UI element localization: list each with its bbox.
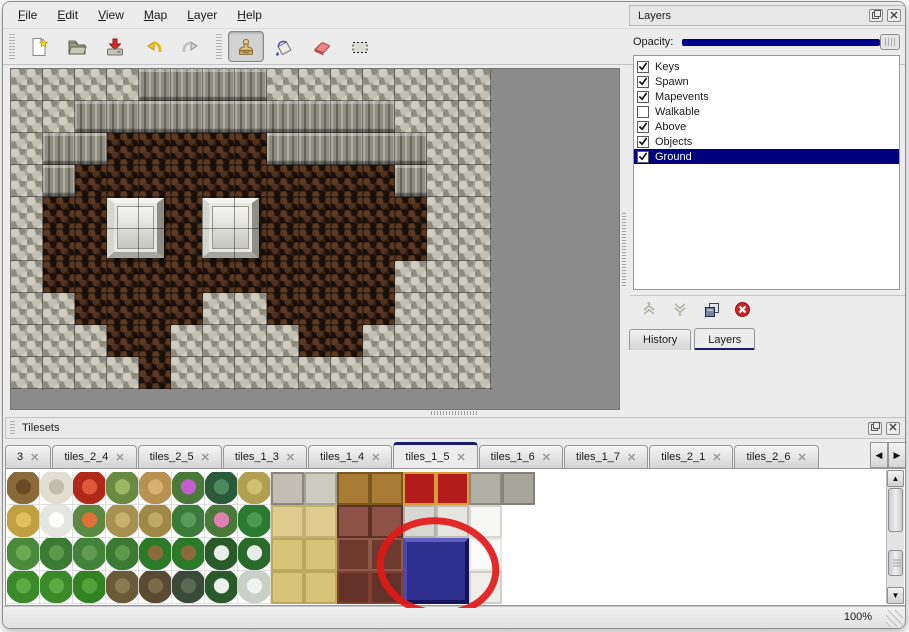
palette-tile-dryGrass[interactable]	[106, 505, 139, 538]
map-tile-rock[interactable]	[395, 261, 427, 293]
palette-tile-redBlock[interactable]	[370, 538, 403, 571]
map-tile-rock[interactable]	[459, 69, 491, 101]
palette-tile-woodA[interactable]	[337, 472, 370, 505]
tab-close-icon[interactable]: ✕	[30, 451, 39, 464]
duplicate-layer-button[interactable]	[702, 302, 720, 320]
tileset-tab-tiles_2_6[interactable]: tiles_2_6✕	[734, 445, 818, 468]
map-tile-cave-floor[interactable]	[331, 293, 363, 325]
scrollbar-thumb-grip[interactable]	[888, 550, 903, 576]
map-tile-cliff-face[interactable]	[235, 101, 267, 133]
map-tile-cave-floor[interactable]	[299, 197, 331, 229]
map-tile-rock[interactable]	[459, 293, 491, 325]
map-tile-rock[interactable]	[235, 357, 267, 389]
map-tile-rock[interactable]	[43, 325, 75, 357]
map-tile-cave-floor[interactable]	[331, 229, 363, 261]
map-tile-cave-floor[interactable]	[203, 133, 235, 165]
map-tile-rock[interactable]	[11, 69, 43, 101]
tab-label: tiles_1_4	[320, 451, 364, 463]
map-tile-rock[interactable]	[331, 357, 363, 389]
tilesets-drag-handle[interactable]	[10, 421, 15, 436]
map-tile-cave-floor[interactable]	[171, 293, 203, 325]
map-tile-rock[interactable]	[331, 69, 363, 101]
palette-tile-leaves[interactable]	[139, 505, 172, 538]
delete-layer-button[interactable]	[733, 302, 751, 320]
map-tile-rock[interactable]	[427, 133, 459, 165]
palette-tile-sprouts[interactable]	[7, 538, 40, 571]
map-tile-cliff-face[interactable]	[75, 133, 107, 165]
map-tile-cliff-face[interactable]	[395, 133, 427, 165]
map-tile-rock[interactable]	[459, 133, 491, 165]
palette-tile-treeDead[interactable]	[40, 472, 73, 505]
menu-file[interactable]: File	[8, 4, 47, 26]
palette-tile-palmB[interactable]	[238, 538, 271, 571]
layer-row-keys[interactable]: Keys	[634, 59, 899, 74]
map-tile-cave-floor[interactable]	[363, 165, 395, 197]
tab-close-icon[interactable]: ✕	[627, 451, 636, 464]
map-tile-cave-floor[interactable]	[395, 197, 427, 229]
palette-tile-stoneCapA[interactable]	[469, 472, 502, 505]
map-tile-cliff-face[interactable]	[299, 101, 331, 133]
map-tile-cave-floor[interactable]	[363, 197, 395, 229]
map-tile-rock[interactable]	[75, 69, 107, 101]
menu-help[interactable]: Help	[227, 4, 272, 26]
map-tile-rock[interactable]	[11, 229, 43, 261]
stamp-tool-button[interactable]	[228, 31, 264, 62]
tileset-tab-tiles_1_4[interactable]: tiles_1_4✕	[308, 445, 392, 468]
map-tile-cave-floor[interactable]	[267, 293, 299, 325]
palette-tile-palmA[interactable]	[139, 538, 172, 571]
map-tile-cave-floor[interactable]	[267, 261, 299, 293]
map-tile-rock[interactable]	[171, 325, 203, 357]
layer-name: Walkable	[655, 106, 700, 118]
map-tile-rock[interactable]	[107, 357, 139, 389]
palette-tile-clothMid[interactable]	[469, 538, 502, 571]
map-tile-rock[interactable]	[427, 325, 459, 357]
map-tile-cave-floor[interactable]	[171, 261, 203, 293]
close-panel-button[interactable]	[887, 9, 901, 22]
opacity-slider-handle[interactable]	[880, 34, 900, 50]
map-tile-rock[interactable]	[43, 101, 75, 133]
map-tile-rock[interactable]	[427, 229, 459, 261]
map-canvas[interactable]	[10, 68, 620, 410]
palette-tile-tatami2[interactable]	[304, 538, 337, 571]
palette-tile-tableDark[interactable]	[337, 505, 370, 538]
menu-layer[interactable]: Layer	[177, 4, 227, 26]
scrollbar-thumb[interactable]	[888, 488, 903, 532]
layer-name: Keys	[655, 61, 679, 73]
menu-view[interactable]: View	[88, 4, 134, 26]
map-tile-cliff-face[interactable]	[267, 133, 299, 165]
eraser-tool-button[interactable]	[304, 31, 340, 62]
tab-label: tiles_1_7	[576, 451, 620, 463]
palette-tile-tatami[interactable]	[304, 505, 337, 538]
palette-tile-palmA[interactable]	[172, 538, 205, 571]
tab-close-icon[interactable]: ✕	[456, 451, 465, 464]
palette-tile-tatami[interactable]	[271, 505, 304, 538]
palette-tile-trunk[interactable]	[139, 472, 172, 505]
palette-tile-fern[interactable]	[205, 472, 238, 505]
map-tile-rock[interactable]	[395, 101, 427, 133]
map-tile-cave-floor[interactable]	[235, 133, 267, 165]
map-tile-cave-floor[interactable]	[43, 197, 75, 229]
palette-tile-tableDark[interactable]	[370, 505, 403, 538]
app-window: FileEditViewMapLayerHelp	[2, 1, 906, 629]
layers-panel-titlebar: Layers	[629, 5, 906, 26]
checkbox-checked[interactable]	[637, 91, 649, 103]
palette-tile-redBase[interactable]	[337, 571, 370, 604]
tab-close-icon[interactable]: ✕	[371, 451, 380, 464]
map-tile-cave-floor[interactable]	[139, 165, 171, 197]
palette-tile-pineSnow[interactable]	[205, 538, 238, 571]
map-tile-cliff-face[interactable]	[363, 101, 395, 133]
menu-edit[interactable]: Edit	[47, 4, 88, 26]
tileset-tab-tiles_1_7[interactable]: tiles_1_7✕	[564, 445, 648, 468]
select-tool-button[interactable]	[342, 31, 378, 62]
map-tile-cave-floor[interactable]	[363, 261, 395, 293]
map-tile-cave-floor[interactable]	[75, 197, 107, 229]
map-tile-cave-floor[interactable]	[171, 229, 203, 261]
checkbox-checked[interactable]	[637, 151, 649, 163]
map-tile-rock[interactable]	[11, 133, 43, 165]
map-tile-rock[interactable]	[43, 357, 75, 389]
map-tile-rock[interactable]	[427, 165, 459, 197]
map-tile-cave-floor[interactable]	[107, 133, 139, 165]
tileset-tab-3[interactable]: 3✕	[5, 445, 51, 468]
map-tile-cliff-face[interactable]	[43, 133, 75, 165]
palette-tile-redBlock[interactable]	[337, 538, 370, 571]
map-tile-cave-floor[interactable]	[75, 293, 107, 325]
map-tile-rock[interactable]	[43, 69, 75, 101]
palette-tile-coneA[interactable]	[40, 571, 73, 604]
palette-tile-deadTwist[interactable]	[106, 571, 139, 604]
map-tile-rock[interactable]	[459, 197, 491, 229]
map-tile-rock[interactable]	[203, 293, 235, 325]
layer-row-objects[interactable]: Objects	[634, 134, 899, 149]
layers-panel-title: Layers	[638, 10, 671, 22]
layer-row-mapevents[interactable]: Mapevents	[634, 89, 899, 104]
map-tile-cave-floor[interactable]	[299, 261, 331, 293]
palette-tile-blueBL[interactable]	[403, 571, 436, 604]
map-tile-rock[interactable]	[299, 357, 331, 389]
map-tile-cave-floor[interactable]	[43, 261, 75, 293]
palette-tile-bushB[interactable]	[73, 538, 106, 571]
map-tile-cave-floor[interactable]	[107, 325, 139, 357]
map-tile-rock[interactable]	[235, 293, 267, 325]
float-icon	[872, 10, 881, 22]
map-tile-cliff-face[interactable]	[331, 101, 363, 133]
map-tile-cave-floor[interactable]	[139, 293, 171, 325]
dock-tab-history[interactable]: History	[629, 329, 691, 350]
palette-tile-bushPurple[interactable]	[172, 472, 205, 505]
map-tile-rock[interactable]	[459, 229, 491, 261]
palette-tile-darkTree[interactable]	[172, 571, 205, 604]
map-tile-cave-floor[interactable]	[75, 229, 107, 261]
close-icon	[889, 422, 897, 434]
checkbox-checked[interactable]	[637, 121, 649, 133]
map-tile-cave-floor[interactable]	[363, 229, 395, 261]
tab-close-icon[interactable]: ✕	[286, 451, 295, 464]
map-tile-rock[interactable]	[459, 325, 491, 357]
map-tile-cliff-face[interactable]	[139, 69, 171, 101]
map-tile-cave-floor[interactable]	[139, 357, 171, 389]
map-tile-rock[interactable]	[203, 325, 235, 357]
save-map-button[interactable]	[97, 31, 133, 62]
map-tile-cliff-face[interactable]	[171, 69, 203, 101]
map-tile-rock[interactable]	[107, 69, 139, 101]
map-tile-rock[interactable]	[459, 357, 491, 389]
float-tilesets-button[interactable]	[868, 422, 882, 435]
map-tile-rock[interactable]	[203, 357, 235, 389]
map-tile-cliff-face[interactable]	[75, 101, 107, 133]
vertical-splitter[interactable]	[620, 65, 628, 410]
palette-tile-woodA[interactable]	[370, 472, 403, 505]
palette-tile-blank[interactable]	[502, 571, 535, 604]
map-tile-cave-floor[interactable]	[107, 261, 139, 293]
map-tile-rock[interactable]	[395, 293, 427, 325]
palette-tile-lilyBig[interactable]	[238, 505, 271, 538]
map-tile-rock[interactable]	[427, 357, 459, 389]
palette-tile-blank[interactable]	[502, 505, 535, 538]
layer-name: Objects	[655, 136, 692, 148]
map-tile-rock[interactable]	[427, 69, 459, 101]
palette-tile-pineTall[interactable]	[205, 571, 238, 604]
palette-tile-bushA[interactable]	[106, 538, 139, 571]
map-tile-cave-floor[interactable]	[107, 165, 139, 197]
palette-tile-snowMound[interactable]	[40, 505, 73, 538]
tab-close-icon[interactable]: ✕	[201, 451, 210, 464]
map-tile-cave-floor[interactable]	[267, 197, 299, 229]
map-tile-cliff-face[interactable]	[299, 133, 331, 165]
map-tile-cave-floor[interactable]	[171, 165, 203, 197]
palette-tile-hay[interactable]	[7, 505, 40, 538]
map-tile-rock[interactable]	[299, 69, 331, 101]
undo-button[interactable]	[135, 31, 171, 62]
map-tile-rock[interactable]	[11, 165, 43, 197]
tab-close-icon[interactable]: ✕	[798, 451, 807, 464]
palette-tile-stoneMidB[interactable]	[436, 505, 469, 538]
redo-button[interactable]	[173, 31, 209, 62]
move-layer-up-button[interactable]	[640, 302, 658, 320]
map-tile-rock[interactable]	[75, 325, 107, 357]
tileset-tab-tiles_1_3[interactable]: tiles_1_3✕	[223, 445, 307, 468]
float-panel-button[interactable]	[869, 9, 883, 22]
map-tile-rock[interactable]	[459, 165, 491, 197]
palette-tile-blueTL[interactable]	[403, 538, 436, 571]
palette-tile-carpet[interactable]	[403, 472, 436, 505]
map-tile-cave-floor[interactable]	[363, 293, 395, 325]
map-tile-rock[interactable]	[395, 325, 427, 357]
palette-tile-bushA[interactable]	[40, 538, 73, 571]
palette-tile-flowerRed[interactable]	[73, 472, 106, 505]
palette-tile-coneA[interactable]	[7, 571, 40, 604]
palette-tile-tatami2[interactable]	[271, 571, 304, 604]
map-tile-rock[interactable]	[235, 325, 267, 357]
palette-tile-blank[interactable]	[502, 538, 535, 571]
map-tile-cave-floor[interactable]	[331, 165, 363, 197]
map-tile-cave-floor[interactable]	[235, 165, 267, 197]
map-tile-rock[interactable]	[395, 69, 427, 101]
fill-tool-button[interactable]	[266, 31, 302, 62]
scroll-tabs-right-button[interactable]: ▶	[888, 442, 906, 468]
map-tile-rock[interactable]	[459, 261, 491, 293]
open-map-button[interactable]	[59, 31, 95, 62]
map-tile-cave-floor[interactable]	[107, 293, 139, 325]
layer-row-walkable[interactable]: Walkable	[634, 104, 899, 119]
new-map-button[interactable]	[21, 31, 57, 62]
arrow-up-icon: ▲	[892, 474, 900, 483]
map-tile-rock[interactable]	[75, 357, 107, 389]
map-tile-rock[interactable]	[267, 325, 299, 357]
map-tile-cliff-face[interactable]	[235, 69, 267, 101]
map-tile-rock[interactable]	[395, 357, 427, 389]
palette-tile-treeBare[interactable]	[7, 472, 40, 505]
tab-close-icon[interactable]: ✕	[115, 451, 124, 464]
layer-list: KeysSpawnMapeventsWalkableAboveObjectsGr…	[633, 55, 900, 290]
palette-tile-deadSnow[interactable]	[238, 571, 271, 604]
palette-tile-deadTree[interactable]	[139, 571, 172, 604]
palette-tile-carpet[interactable]	[436, 472, 469, 505]
checkbox-unchecked[interactable]	[637, 106, 649, 118]
map-tile-cave-floor[interactable]	[171, 197, 203, 229]
map-tile-cave-floor[interactable]	[139, 325, 171, 357]
dock-tab-layers[interactable]: Layers	[694, 328, 755, 350]
map-tile-rock[interactable]	[363, 69, 395, 101]
status-bar: 100%	[3, 606, 905, 628]
stone-block-object[interactable]	[107, 198, 164, 258]
zoom-level-label: 100%	[844, 611, 872, 623]
map-tile-rock[interactable]	[11, 101, 43, 133]
map-tile-cave-floor[interactable]	[299, 293, 331, 325]
checkbox-checked[interactable]	[637, 61, 649, 73]
menu-map[interactable]: Map	[134, 4, 177, 26]
map-tile-rock[interactable]	[11, 261, 43, 293]
palette-tile-flowerPink[interactable]	[205, 505, 238, 538]
map-tile-rock[interactable]	[427, 261, 459, 293]
map-tile-cave-floor[interactable]	[139, 261, 171, 293]
tab-label: tiles_2_4	[64, 451, 108, 463]
map-tile-cave-floor[interactable]	[331, 261, 363, 293]
map-tile-cave-floor[interactable]	[203, 261, 235, 293]
map-tile-cave-floor[interactable]	[139, 133, 171, 165]
map-tile-rock[interactable]	[267, 357, 299, 389]
palette-tile-flowersOrange[interactable]	[73, 505, 106, 538]
map-tile-cave-floor[interactable]	[331, 197, 363, 229]
map-tile-cliff-face[interactable]	[395, 165, 427, 197]
map-tile-cave-floor[interactable]	[75, 261, 107, 293]
map-tile-cliff-face[interactable]	[107, 101, 139, 133]
map-tile-cave-floor[interactable]	[267, 229, 299, 261]
map-tile-rock[interactable]	[427, 293, 459, 325]
palette-tile-tatami2[interactable]	[271, 538, 304, 571]
scroll-up-button[interactable]: ▲	[887, 470, 904, 487]
palette-tile-stoneMidA[interactable]	[403, 505, 436, 538]
map-tile-rock[interactable]	[11, 197, 43, 229]
layer-row-spawn[interactable]: Spawn	[634, 74, 899, 89]
palette-tile-stoneCorner[interactable]	[271, 472, 304, 505]
map-tile-rock[interactable]	[11, 325, 43, 357]
tileset-tab-tiles_1_6[interactable]: tiles_1_6✕	[479, 445, 563, 468]
palette-tile-tatami2[interactable]	[304, 571, 337, 604]
layer-row-ground[interactable]: Ground	[634, 149, 899, 164]
tab-close-icon[interactable]: ✕	[712, 451, 721, 464]
tileset-tab-tiles_2_4[interactable]: tiles_2_4✕	[52, 445, 136, 468]
toolbar-drag-handle[interactable]	[9, 34, 15, 60]
map-tile-rock[interactable]	[11, 357, 43, 389]
move-layer-down-button[interactable]	[671, 302, 689, 320]
map-tile-rock[interactable]	[363, 357, 395, 389]
palette-tile-blueTR[interactable]	[436, 538, 469, 571]
map-tile-cave-floor[interactable]	[395, 229, 427, 261]
map-tile-rock[interactable]	[43, 293, 75, 325]
map-tile-cliff-face[interactable]	[203, 101, 235, 133]
palette-scrollbar[interactable]: ▲ ▼	[886, 470, 904, 604]
map-tile-rock[interactable]	[11, 293, 43, 325]
palette-tile-stump[interactable]	[106, 472, 139, 505]
opacity-slider[interactable]	[682, 34, 900, 50]
map-tile-cave-floor[interactable]	[299, 325, 331, 357]
map-tile-rock[interactable]	[427, 197, 459, 229]
layer-row-above[interactable]: Above	[634, 119, 899, 134]
palette-tile-plantSmall[interactable]	[238, 472, 271, 505]
palette-tile-stoneCapB[interactable]	[502, 472, 535, 505]
palette-tile-blueBR[interactable]	[436, 571, 469, 604]
checkbox-checked[interactable]	[637, 76, 649, 88]
resize-grip[interactable]	[886, 610, 903, 627]
map-tile-cave-floor[interactable]	[75, 165, 107, 197]
map-tile-rock[interactable]	[459, 101, 491, 133]
map-tile-cliff-face[interactable]	[171, 101, 203, 133]
map-tile-cliff-face[interactable]	[203, 69, 235, 101]
checkbox-checked[interactable]	[637, 136, 649, 148]
layer-name: Above	[655, 121, 686, 133]
close-tilesets-button[interactable]	[886, 422, 900, 435]
map-tile-cave-floor[interactable]	[331, 325, 363, 357]
tab-close-icon[interactable]: ✕	[542, 451, 551, 464]
map-tile-cave-floor[interactable]	[299, 165, 331, 197]
map-tile-rock[interactable]	[427, 101, 459, 133]
scroll-down-button[interactable]: ▼	[887, 587, 904, 604]
stone-block-object[interactable]	[202, 198, 259, 258]
map-tile-cave-floor[interactable]	[203, 165, 235, 197]
palette-tile-clothFringe[interactable]	[469, 571, 502, 604]
map-tile-cave-floor[interactable]	[43, 229, 75, 261]
palette-tile-coneB[interactable]	[73, 571, 106, 604]
map-tile-rock[interactable]	[171, 357, 203, 389]
tileset-tab-tiles_1_5[interactable]: tiles_1_5✕	[393, 442, 477, 468]
tileset-tab-tiles_2_5[interactable]: tiles_2_5✕	[138, 445, 222, 468]
toolbar-group-handle[interactable]	[216, 34, 222, 60]
tileset-palette[interactable]: ▲ ▼	[5, 468, 906, 606]
map-tile-rock[interactable]	[363, 325, 395, 357]
tileset-tab-tiles_2_1[interactable]: tiles_2_1✕	[649, 445, 733, 468]
map-tile-cliff-face[interactable]	[267, 101, 299, 133]
palette-tile-lilyPad[interactable]	[172, 505, 205, 538]
map-tile-rock[interactable]	[267, 69, 299, 101]
map-tile-cliff-face[interactable]	[331, 133, 363, 165]
palette-tile-redBase[interactable]	[370, 571, 403, 604]
map-tile-cave-floor[interactable]	[235, 261, 267, 293]
map-tile-cliff-face[interactable]	[43, 165, 75, 197]
palette-tile-stonePale[interactable]	[304, 472, 337, 505]
map-tile-cave-floor[interactable]	[299, 229, 331, 261]
scroll-tabs-left-button[interactable]: ◀	[870, 442, 888, 468]
palette-tile-clothTop[interactable]	[469, 505, 502, 538]
map-tile-cave-floor[interactable]	[267, 165, 299, 197]
map-tile-cliff-face[interactable]	[363, 133, 395, 165]
map-tile-cave-floor[interactable]	[171, 133, 203, 165]
map-tile-cliff-face[interactable]	[139, 101, 171, 133]
eraser-icon	[311, 36, 333, 58]
